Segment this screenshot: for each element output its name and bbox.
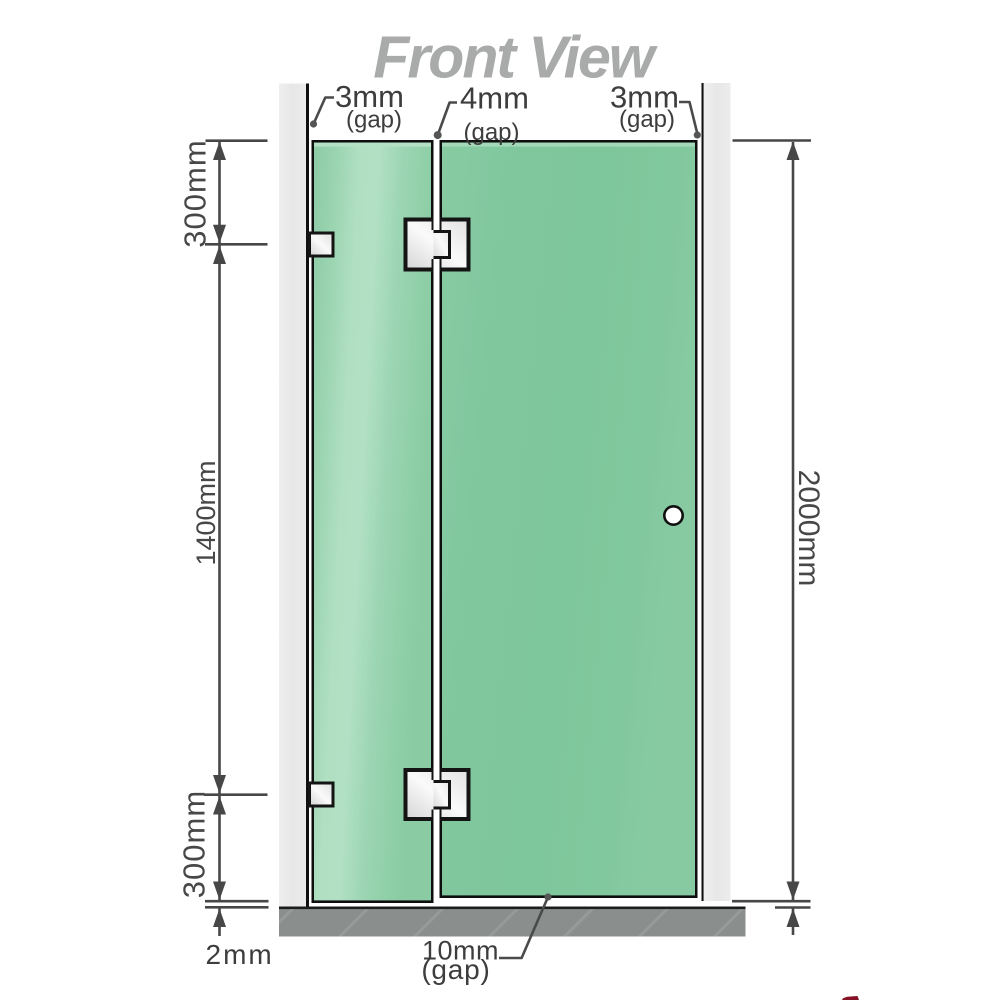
svg-text:(gap): (gap) xyxy=(421,954,490,985)
svg-text:300mm: 300mm xyxy=(178,139,213,247)
svg-text:(gap): (gap) xyxy=(346,107,402,134)
svg-text:2mm: 2mm xyxy=(206,939,274,970)
svg-text:4mm: 4mm xyxy=(460,81,529,116)
svg-text:2000mm: 2000mm xyxy=(792,470,825,587)
svg-text:(gap): (gap) xyxy=(619,106,675,133)
svg-text:300mm: 300mm xyxy=(177,790,212,898)
svg-text:1400mm: 1400mm xyxy=(191,460,221,565)
svg-text:(gap): (gap) xyxy=(463,119,519,146)
